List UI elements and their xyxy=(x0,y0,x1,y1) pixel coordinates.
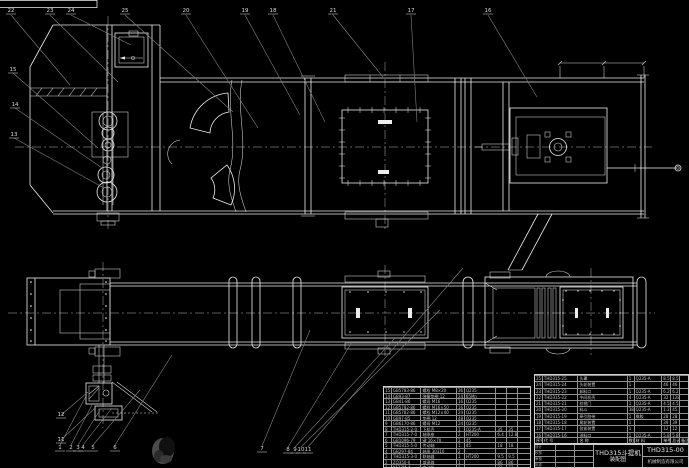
bom-cell xyxy=(464,464,496,468)
callout-number: 21 xyxy=(330,8,337,14)
callout-number: 22 xyxy=(8,8,15,14)
bom-table-header: 序号代 号名 称数量材 料单件总计备注 xyxy=(534,437,689,444)
callout-number: 6 xyxy=(113,445,117,451)
callout-number: 2 xyxy=(69,445,73,451)
bom-cell: 数量 xyxy=(627,437,634,443)
bom-table-left: 15GB5783-86螺栓 M8×2036Q23514GB93-87弹簧垫圈 1… xyxy=(383,386,531,468)
bom-cell: 电动机 xyxy=(420,464,455,468)
callout-number: 5 xyxy=(91,445,95,451)
callout-number: 24 xyxy=(68,8,75,14)
buckets xyxy=(168,80,246,212)
bom-cell: 1 xyxy=(384,464,391,468)
bom-cell: 总计 xyxy=(670,437,679,443)
drawing-type: 装配图 xyxy=(610,457,627,464)
bom-cell: 材 料 xyxy=(634,437,662,443)
callout-number: 11 xyxy=(58,437,65,443)
side-view xyxy=(15,16,681,270)
callout-number: 8 xyxy=(286,447,290,453)
bom-cell: 单件 xyxy=(661,437,670,443)
callout-number: 20 xyxy=(183,8,190,14)
callout-number: 7 xyxy=(260,446,264,452)
head-section xyxy=(475,61,681,218)
bom-cell: 序号 xyxy=(535,437,542,443)
bom-table-right: 25THD315-25头罩1Q235-A8.58.524THD315-24头轮装… xyxy=(534,374,689,444)
callout-number: 23 xyxy=(47,8,54,14)
bom-cell xyxy=(517,464,530,468)
product-cell: THD315斗提机 装配图 xyxy=(594,445,643,467)
callout-number: 3 xyxy=(76,445,80,451)
bom-cell: 代 号 xyxy=(542,437,578,443)
callout-number: 19 xyxy=(242,8,249,14)
boot-access-box xyxy=(115,31,148,67)
bom-cell: Y132M-4 xyxy=(391,464,421,468)
callout-number: 25 xyxy=(122,8,129,14)
signature-grid: 设计 校核 审核 批准 xyxy=(535,445,594,467)
plan-head-box xyxy=(27,269,120,356)
callout-number: 4 xyxy=(81,445,85,451)
flange-bolts xyxy=(30,281,107,342)
bom-cell: 名 称 xyxy=(577,437,626,443)
callout-number: 12 xyxy=(58,412,65,418)
bom-cell: 73 xyxy=(506,464,517,468)
boot-casing xyxy=(30,25,644,225)
sheet-border-corner xyxy=(0,0,97,8)
product-name: THD315斗提机 xyxy=(595,449,641,457)
bom-cell: 73 xyxy=(495,464,506,468)
drawing-number: THD315-00 xyxy=(643,445,688,457)
callout-number: 1 xyxy=(58,445,62,451)
dimension-line xyxy=(558,61,646,78)
callout-number: 17 xyxy=(408,8,415,14)
number-cell: THD315-00 机械制造有限公司 xyxy=(643,445,688,467)
watermark-blob xyxy=(152,437,175,464)
sprocket-stack xyxy=(92,112,128,205)
sign-label: 批准 xyxy=(535,463,555,468)
bom-cell: 1 xyxy=(456,464,464,468)
tail-door-bolts xyxy=(562,290,620,334)
plan-tail-box xyxy=(485,271,633,354)
title-block: 设计 校核 审核 批准 THD315斗提机 装配图 THD315-00 机械制造… xyxy=(534,444,689,468)
callout-number: 16 xyxy=(485,8,492,14)
callout-number: 11 xyxy=(305,447,312,453)
discharge-chute xyxy=(508,214,552,270)
leader-lines xyxy=(11,15,537,447)
callout-number: 15 xyxy=(10,67,17,73)
bom-row: 1Y132M-4电动机17373 xyxy=(384,464,530,468)
callout-number: 13 xyxy=(11,132,18,138)
bom-row: 序号代 号名 称数量材 料单件总计备注 xyxy=(535,437,688,443)
cad-sheet: 2223242520191821171615141312111234567891… xyxy=(0,0,689,468)
company-name: 机械制造有限公司 xyxy=(643,457,688,468)
bom-cell: 备注 xyxy=(679,437,688,443)
callout-number: 14 xyxy=(12,102,19,108)
plan-casing xyxy=(110,277,646,348)
callout-number: 18 xyxy=(270,8,277,14)
